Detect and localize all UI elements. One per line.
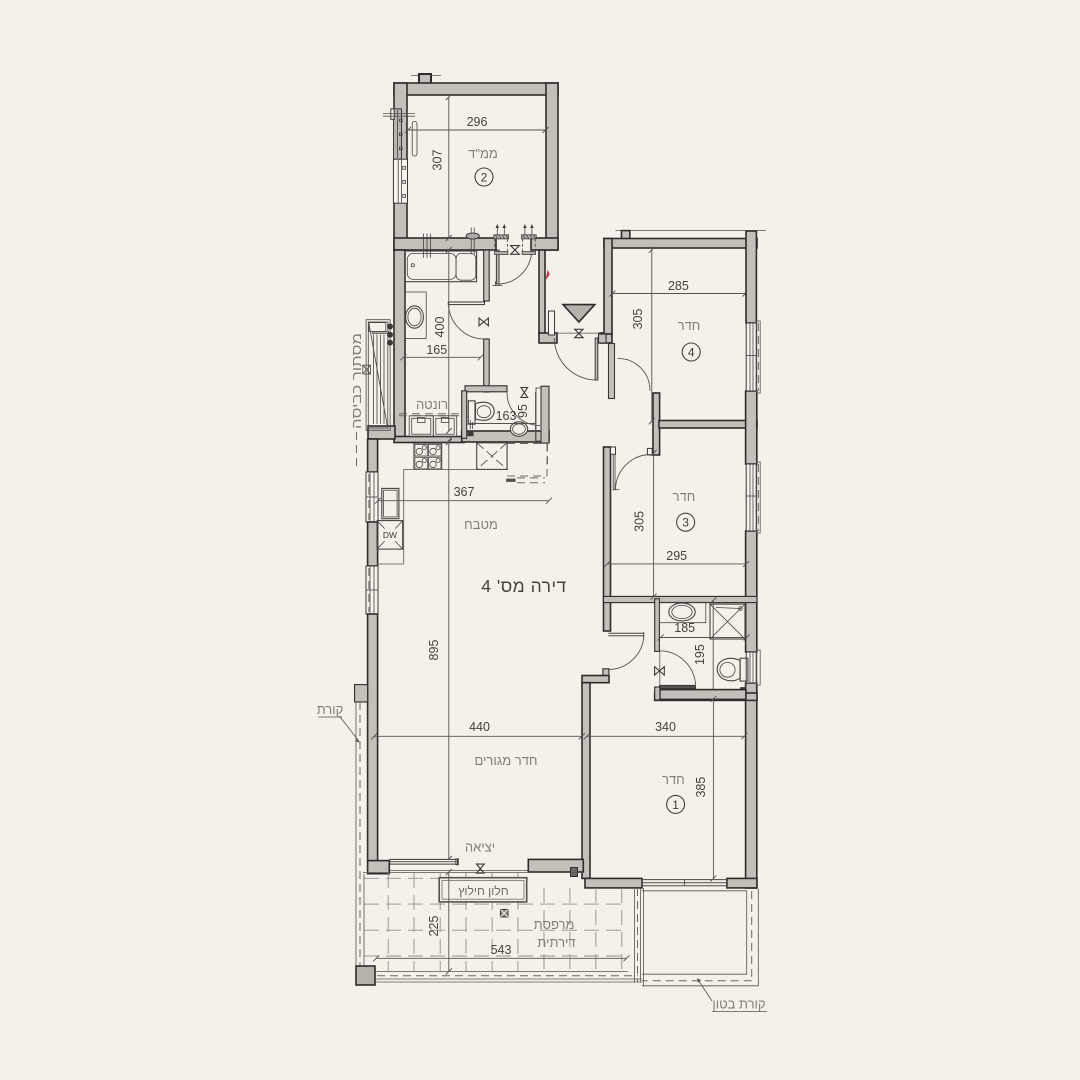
svg-text:163: 163 (496, 409, 517, 423)
svg-text:1: 1 (672, 798, 679, 812)
svg-text:165: 165 (426, 343, 447, 357)
svg-text:חדר מגורים: חדר מגורים (474, 753, 537, 768)
svg-text:2: 2 (481, 171, 488, 185)
svg-text:367: 367 (454, 485, 475, 499)
svg-text:חלון חילוץ: חלון חילוץ (458, 884, 508, 898)
svg-text:185: 185 (674, 621, 695, 635)
svg-text:95: 95 (516, 404, 530, 418)
svg-text:225: 225 (427, 916, 441, 937)
svg-text:קורת: קורת (317, 702, 344, 717)
svg-text:4: 4 (688, 346, 695, 360)
svg-text:קורת בטון: קורת בטון (712, 997, 765, 1012)
svg-text:305: 305 (632, 511, 646, 532)
svg-text:חדר: חדר (662, 772, 685, 787)
svg-text:מסתור כביסה: מסתור כביסה (349, 333, 364, 429)
svg-text:ממ"ד: ממ"ד (468, 146, 498, 161)
svg-text:305: 305 (631, 309, 645, 330)
svg-text:340: 340 (655, 720, 676, 734)
svg-text:מטבח: מטבח (464, 517, 498, 532)
svg-text:195: 195 (693, 644, 707, 665)
svg-text:יציאה: יציאה (465, 840, 495, 855)
svg-text:285: 285 (668, 279, 689, 293)
svg-text:רונטה: רונטה (416, 397, 448, 412)
svg-text:385: 385 (694, 777, 708, 798)
svg-text:440: 440 (469, 720, 490, 734)
svg-text:400: 400 (433, 317, 447, 338)
svg-text:543: 543 (491, 943, 512, 957)
svg-text:295: 295 (666, 549, 687, 563)
svg-text:חדר: חדר (678, 318, 701, 333)
svg-text:DW: DW (383, 530, 397, 540)
svg-text:מרפסת: מרפסת (534, 917, 575, 932)
svg-text:895: 895 (427, 640, 441, 661)
svg-text:3: 3 (682, 516, 689, 530)
svg-text:חדר: חדר (673, 489, 696, 504)
svg-text:דירתית: דירתית (537, 935, 575, 950)
svg-text:307: 307 (431, 150, 445, 171)
svg-text:296: 296 (467, 115, 488, 129)
svg-text:דירה מס' 4: דירה מס' 4 (481, 576, 566, 596)
